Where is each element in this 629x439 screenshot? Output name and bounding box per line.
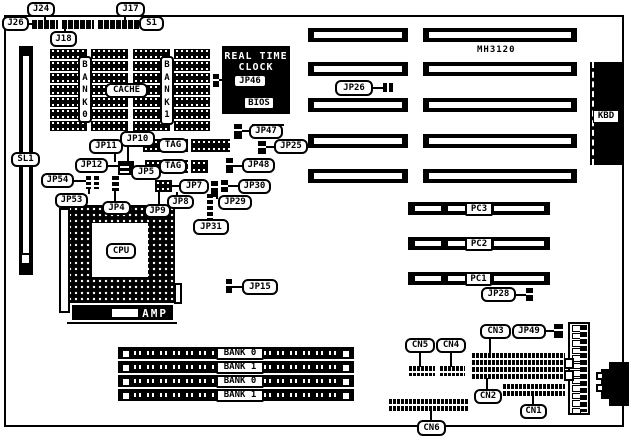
sl1-slot-notch (22, 255, 29, 263)
isa-slot (423, 98, 577, 112)
cache-chip (174, 73, 210, 83)
cache-chip (174, 109, 210, 119)
cpu-socket-tab (174, 283, 182, 304)
label-cache: CACHE (105, 83, 148, 98)
leader (74, 180, 86, 182)
label-jp49: JP49 (512, 324, 546, 339)
label-s1: S1 (139, 16, 164, 31)
label-jp30: JP30 (238, 179, 271, 194)
cache-chip (91, 49, 128, 59)
label-j24: J24 (27, 2, 55, 17)
isa-slot (423, 62, 577, 76)
label-jp26: JP26 (335, 80, 373, 96)
top-header-strip (32, 20, 140, 29)
cache-chip (174, 121, 210, 131)
label-jp48: JP48 (242, 158, 275, 173)
leader (516, 294, 526, 296)
jp28-jumper (526, 288, 533, 301)
jp8-jp9-jumper-block (155, 180, 172, 192)
leader (127, 146, 129, 162)
label-jp12: JP12 (75, 158, 108, 173)
label-bank1-cache: BANK1 (160, 56, 174, 125)
cn6-header (389, 399, 469, 411)
isa-slot (423, 134, 577, 148)
label-pc1: PC1 (465, 272, 492, 286)
jp4-jumper (112, 176, 119, 191)
label-pc3: PC3 (465, 202, 493, 216)
isa-slot (308, 134, 408, 148)
label-jp54: JP54 (41, 173, 74, 188)
amp-label: AMP (142, 307, 168, 320)
label-jp8: JP8 (167, 195, 194, 209)
isa-slot (423, 169, 577, 183)
label-cn4: CN4 (436, 338, 466, 353)
solder-pad (564, 358, 574, 369)
isa-slot (308, 98, 408, 112)
keyboard-din-port (609, 362, 629, 406)
label-jp46: JP46 (233, 74, 267, 88)
isa-slot (423, 28, 577, 42)
leader (545, 330, 554, 332)
label-simm-bank: BANK 1 (216, 389, 264, 402)
jp30-jumper (221, 180, 228, 192)
board-model-text: MH3120 (477, 45, 516, 55)
cn5-header (409, 366, 435, 376)
label-simm-bank: BANK 1 (216, 361, 264, 374)
label-jp47: JP47 (249, 124, 283, 139)
label-jp25: JP25 (274, 139, 308, 154)
label-bios: BIOS (243, 96, 275, 110)
leader (450, 352, 452, 367)
din-notch (596, 384, 604, 392)
cache-chip (91, 61, 128, 71)
cache-chip (174, 61, 210, 71)
tag-chip (191, 139, 230, 152)
cache-chip (91, 73, 128, 83)
cn1-header (503, 384, 565, 396)
label-jp5: JP5 (131, 165, 161, 180)
label-tag2: TAG (159, 159, 187, 174)
label-jp7: JP7 (179, 179, 209, 194)
jp25-jumper (258, 141, 266, 154)
leader (419, 352, 421, 367)
label-cn5: CN5 (405, 338, 435, 353)
cache-chip (174, 85, 210, 95)
label-kbd: KBD (593, 110, 619, 123)
label-jp29: JP29 (218, 195, 252, 210)
tag-chip (191, 160, 208, 173)
label-j17: J17 (116, 2, 145, 17)
label-j26: J26 (2, 16, 29, 31)
label-jp10: JP10 (120, 131, 155, 147)
label-jp31: JP31 (193, 219, 229, 235)
jp49-jumper (554, 324, 563, 338)
rtc-title-line2: CLOCK (222, 62, 290, 73)
vertical-chip (59, 208, 70, 313)
leader (107, 165, 118, 167)
label-jp4: JP4 (102, 201, 131, 215)
label-cpu: CPU (106, 243, 136, 259)
label-simm-bank: BANK 0 (216, 347, 264, 360)
amp-regulator: AMP (72, 305, 173, 320)
motherboard-diagram: MH3120 REAL TIME CLOCK AMP (0, 0, 629, 439)
leader (88, 188, 90, 194)
leader (114, 153, 116, 162)
label-sl1: SL1 (11, 152, 40, 167)
label-tag1: TAG (158, 138, 188, 153)
cache-chip (174, 49, 210, 59)
label-cn3: CN3 (480, 324, 511, 339)
isa-slot (308, 28, 408, 42)
cache-chip (91, 109, 128, 119)
jp48-jumper (226, 158, 233, 173)
label-jp28: JP28 (481, 287, 516, 302)
isa-slot (308, 169, 408, 183)
label-simm-bank: BANK 0 (216, 375, 264, 388)
label-j18: J18 (50, 31, 77, 47)
din-notch (596, 372, 604, 380)
label-pc2: PC2 (465, 237, 493, 251)
label-bank0-cache: BANK0 (78, 56, 92, 123)
cache-chip (91, 97, 128, 107)
jp26-jumper (383, 83, 393, 92)
leader (219, 79, 233, 81)
rtc-title-line1: REAL TIME (222, 51, 290, 62)
leader (373, 87, 383, 89)
board-edge-bottom (4, 425, 624, 427)
cache-chip (91, 121, 128, 131)
cn4-header (440, 366, 465, 376)
cache-chip (174, 97, 210, 107)
rtc-title: REAL TIME CLOCK (222, 46, 290, 73)
leader (489, 338, 491, 353)
jp47-jumper (234, 124, 242, 139)
cn3-header (472, 353, 565, 365)
label-jp11: JP11 (89, 139, 123, 154)
board-edge-left (4, 15, 6, 427)
label-cn2: CN2 (474, 389, 502, 404)
solder-pad (564, 370, 574, 381)
jp31-jumper (207, 194, 213, 219)
label-cn1: CN1 (520, 404, 547, 419)
isa-slot (308, 62, 408, 76)
label-jp15: JP15 (242, 279, 278, 295)
label-cn6: CN6 (417, 420, 446, 436)
board-edge-top (4, 15, 624, 17)
label-jp53: JP53 (55, 193, 88, 208)
amp-underline (67, 322, 177, 324)
